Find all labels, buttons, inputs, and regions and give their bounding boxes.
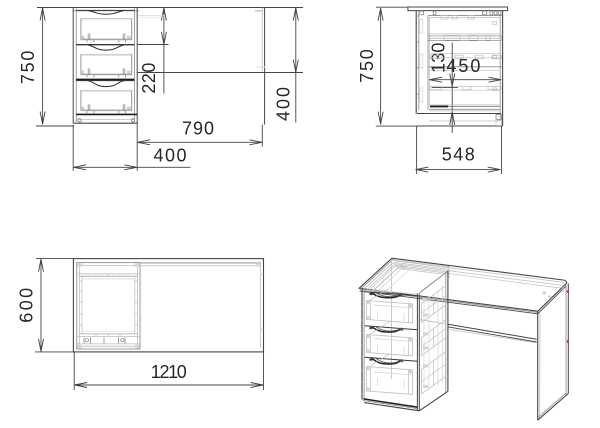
svg-text:600: 600 xyxy=(17,288,37,323)
svg-text:548: 548 xyxy=(442,144,475,164)
svg-text:790: 790 xyxy=(182,119,214,139)
svg-text:1210: 1210 xyxy=(151,362,187,382)
svg-text:750: 750 xyxy=(357,49,377,83)
svg-text:400: 400 xyxy=(274,87,294,121)
svg-text:220: 220 xyxy=(139,63,159,94)
svg-text:400: 400 xyxy=(154,145,187,165)
svg-text:750: 750 xyxy=(18,51,38,85)
